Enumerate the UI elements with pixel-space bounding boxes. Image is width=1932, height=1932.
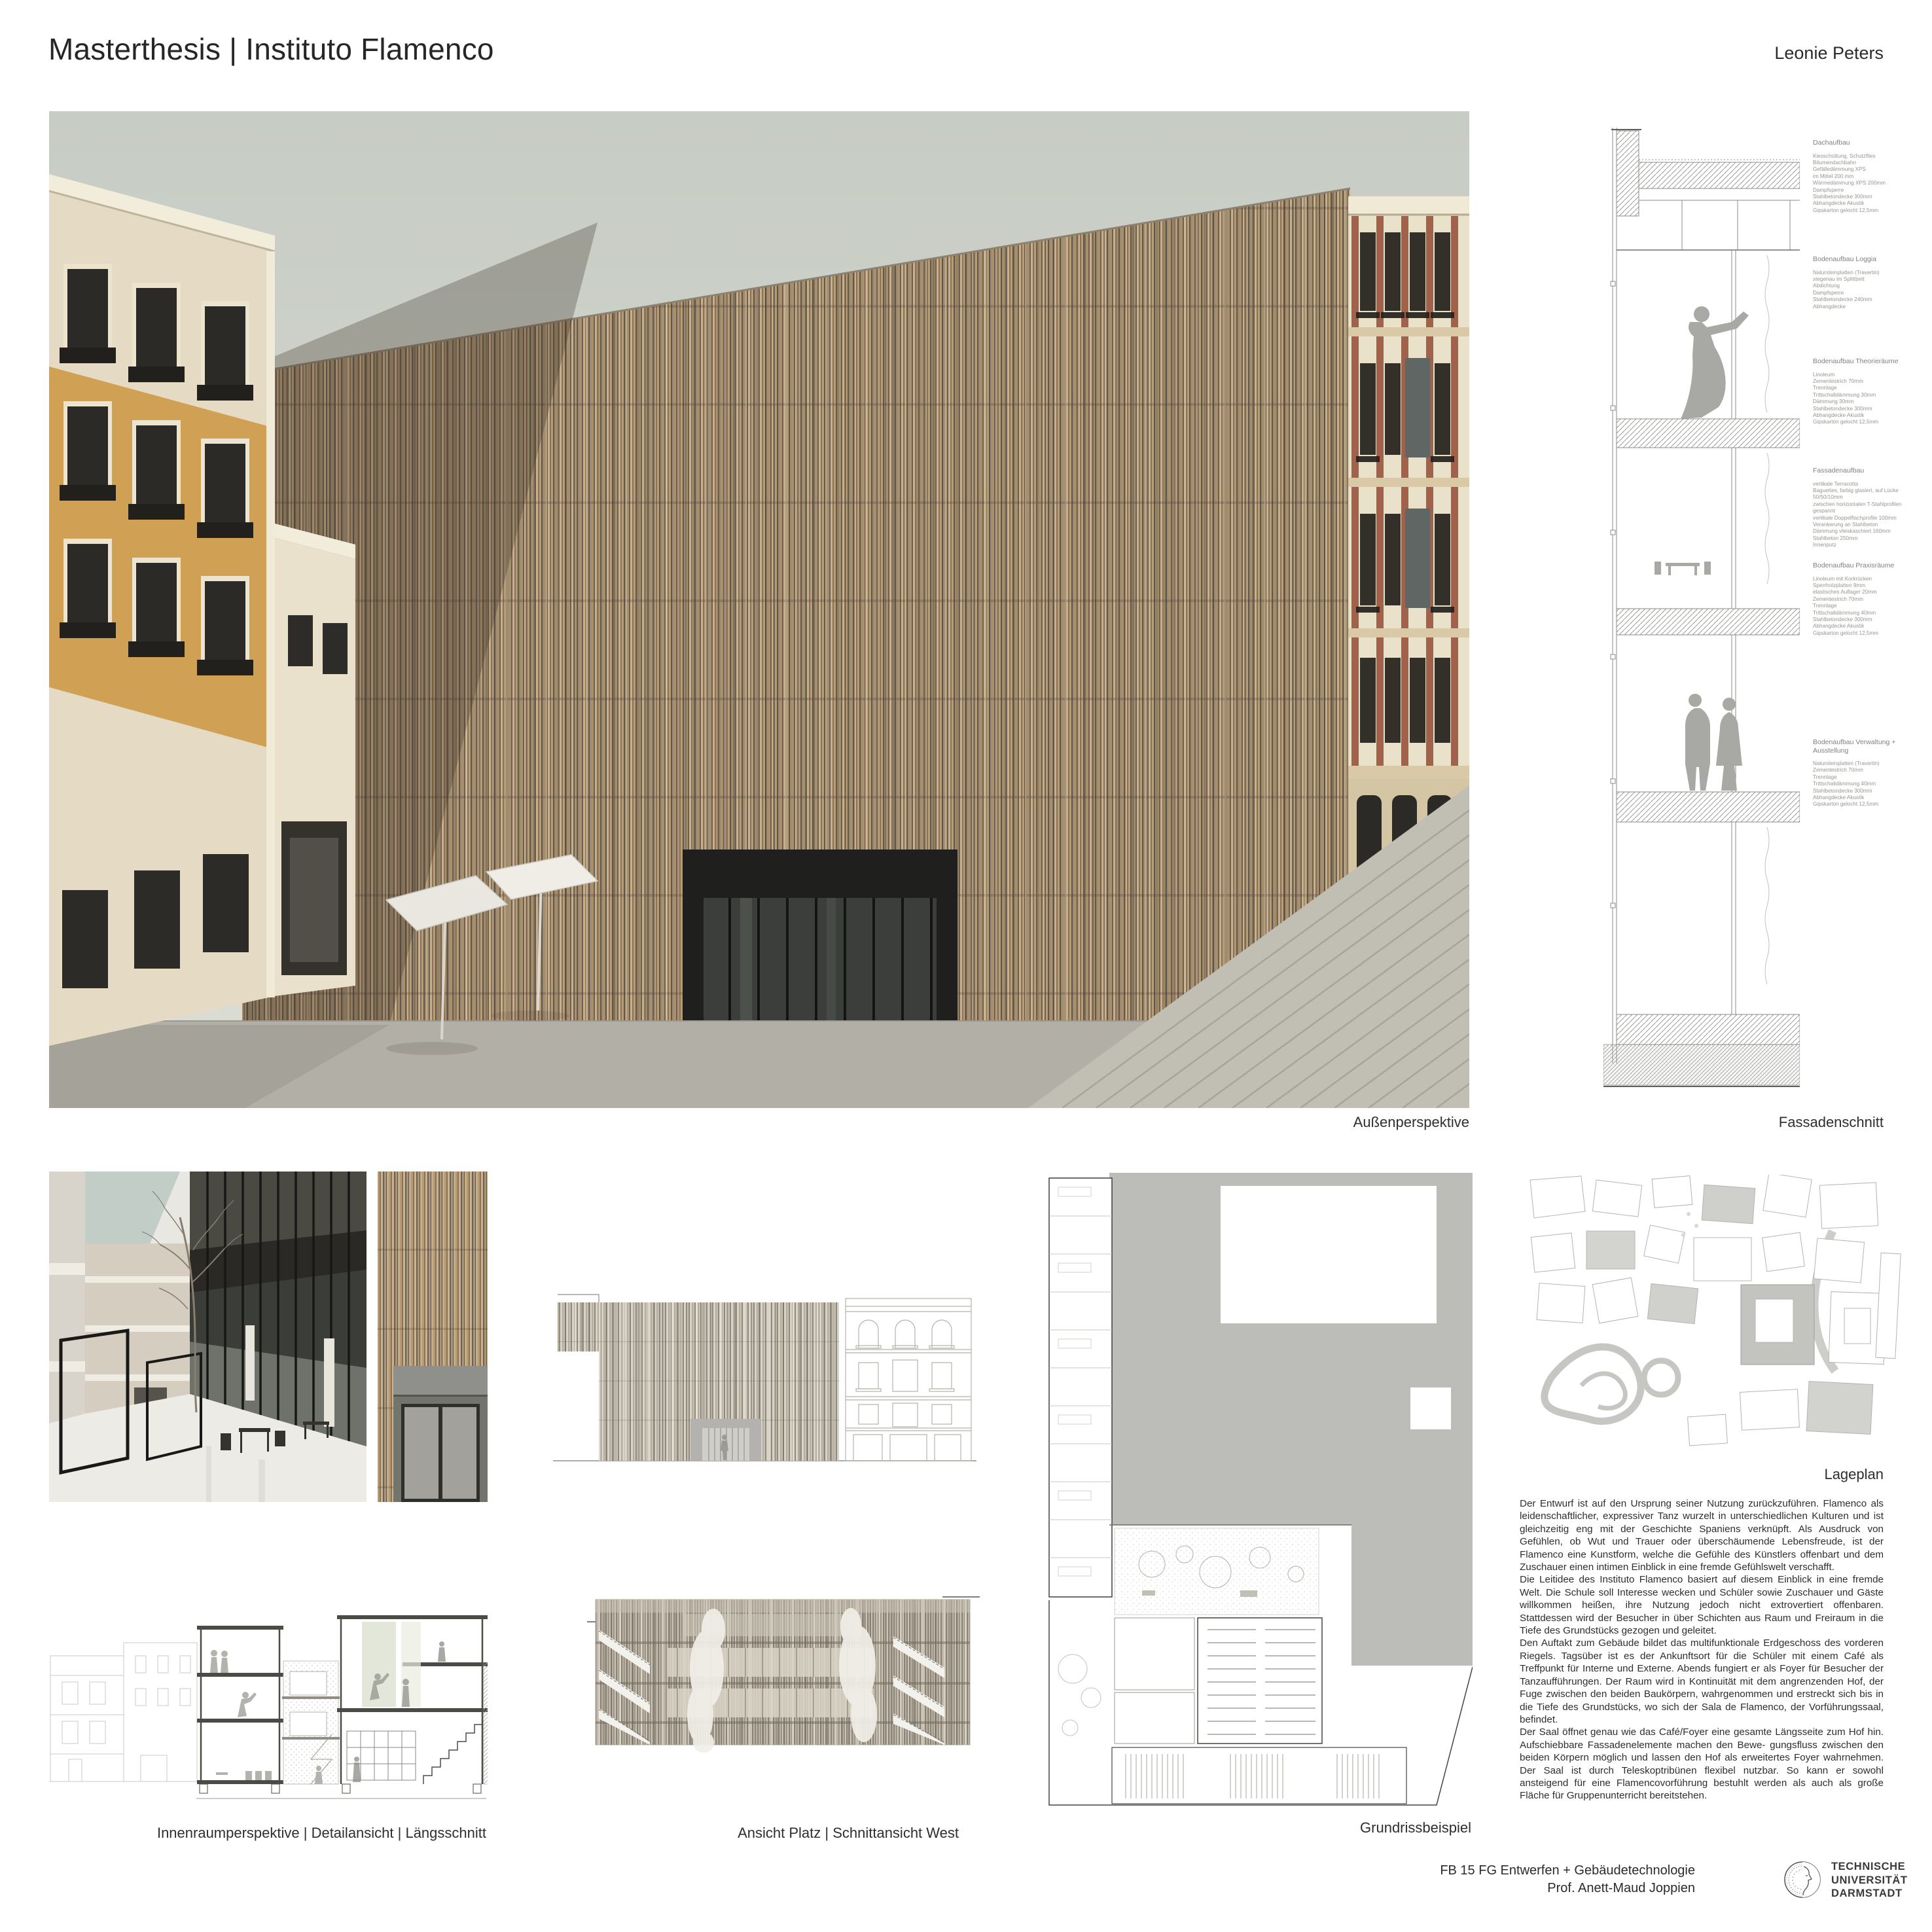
author-name: Leonie Peters	[1603, 43, 1884, 63]
facade-section-drawing	[1603, 111, 1800, 1108]
annotation-praxisraeume: Bodenaufbau Praxisräume Linoleum mit Kor…	[1813, 562, 1906, 637]
caption-facade-section: Fassadenschnitt	[1603, 1114, 1884, 1131]
interior-perspective-render	[49, 1172, 367, 1502]
section-elevation-west-drawing	[586, 1590, 982, 1754]
floor-plan-drawing	[1044, 1172, 1473, 1806]
elevation-platz-drawing	[537, 1263, 982, 1486]
facade-section-figure: Dachaufbau Kiesschüttung, SchutzfliesBit…	[1603, 111, 1905, 1108]
logo-text: TECHNISCHEUNIVERSITÄTDARMSTADT	[1831, 1857, 1908, 1901]
section-volume-front	[197, 1626, 283, 1793]
site-plan-drawing	[1525, 1175, 1903, 1463]
caption-elevation-section-west: Ansicht Platz | Schnittansicht West	[537, 1825, 959, 1842]
department-credit: FB 15 FG Entwerfen + Gebäudetechnologie …	[1374, 1862, 1695, 1897]
exterior-perspective-render	[49, 111, 1469, 1108]
neighbor-elevation	[846, 1298, 971, 1461]
page-title: Masterthesis | Instituto Flamenco	[48, 31, 494, 67]
detail-entrance-door	[393, 1366, 488, 1502]
caption-interior-detail-section: Innenraumperspektive | Detailansicht | L…	[49, 1825, 486, 1842]
annotation-theorieraeume: Bodenaufbau Theorieräume LinoleumZemente…	[1813, 357, 1906, 426]
facade-detail-view	[378, 1172, 488, 1502]
left-wing-plan	[1049, 1178, 1112, 1597]
athena-emblem-icon	[1781, 1857, 1823, 1908]
long-section-drawing	[49, 1590, 488, 1813]
annotation-fassadenaufbau: Fassadenaufbau vertikale TerracottaBague…	[1813, 467, 1906, 549]
annotation-dachaufbau: Dachaufbau Kiesschüttung, SchutzfliesBit…	[1813, 139, 1906, 214]
courtyard-joint	[282, 1661, 340, 1784]
slat-elevation	[558, 1295, 839, 1461]
credit-line-2: Prof. Anett-Maud Joppien	[1374, 1880, 1695, 1897]
sala-flamenco-plan	[1112, 1747, 1406, 1804]
annotation-verwaltung-ausstellung: Bodenaufbau Verwaltung + Ausstellung Nat…	[1813, 738, 1906, 808]
project-description-text: Der Entwurf ist auf den Ursprung seiner …	[1520, 1497, 1884, 1802]
main-entrance	[683, 850, 957, 1025]
caption-floor-plan: Grundrissbeispiel	[1044, 1819, 1471, 1836]
caption-exterior-perspective: Außenperspektive	[49, 1114, 1469, 1131]
tu-darmstadt-logo: TECHNISCHEUNIVERSITÄTDARMSTADT	[1781, 1857, 1908, 1908]
poster-page: Masterthesis | Instituto Flamenco Leonie…	[0, 0, 1932, 1932]
park-paths	[1545, 1347, 1678, 1422]
credit-line-1: FB 15 FG Entwerfen + Gebäudetechnologie	[1374, 1862, 1695, 1880]
garden-court-plan	[1115, 1528, 1319, 1615]
flamenco-dancer-silhouette	[1681, 306, 1749, 419]
caption-site-plan: Lageplan	[1525, 1466, 1884, 1483]
people-silhouettes	[1685, 694, 1742, 791]
hall-with-tribune-plan	[1198, 1618, 1322, 1744]
street-context	[49, 1643, 200, 1781]
annotation-loggia: Bodenaufbau Loggia Natursteinplatten (Tr…	[1813, 255, 1906, 310]
